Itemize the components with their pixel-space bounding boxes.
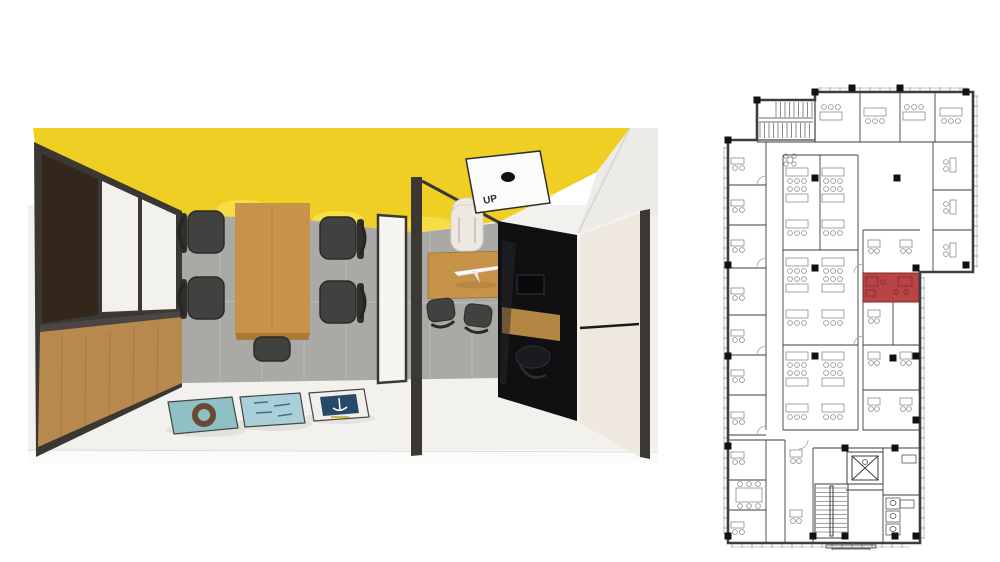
column-marker: [725, 262, 732, 269]
desk-cluster: [822, 220, 844, 228]
column-marker: [754, 97, 761, 104]
glass-pane: [378, 215, 406, 383]
stairs-top: [757, 100, 815, 140]
column-marker: [849, 85, 856, 92]
up-sign: UP: [466, 151, 550, 213]
column-marker: [963, 262, 970, 269]
desk-cluster: [786, 284, 808, 292]
desk-cluster: [864, 108, 886, 116]
interior-walls-layer: [728, 92, 973, 543]
column-marker: [913, 417, 920, 424]
core: [815, 452, 916, 550]
column-marker: [812, 265, 819, 272]
column-marker: [812, 89, 819, 96]
desk-cluster: [736, 488, 762, 502]
cream-panels: [580, 209, 650, 459]
plant-symbol: [784, 154, 796, 166]
desk-cluster: [868, 310, 880, 317]
floorplan-svg: [708, 84, 980, 550]
chair: [179, 277, 224, 319]
column-marker: [913, 265, 920, 272]
poster-3: [309, 389, 369, 421]
desk-cluster: [950, 243, 956, 257]
desk-cluster: [790, 510, 802, 517]
desk-cluster: [790, 450, 802, 457]
desk-cluster: [786, 258, 808, 266]
desk-cluster: [903, 112, 925, 120]
chair: [320, 281, 365, 323]
desk-cluster: [731, 452, 744, 458]
desk-cluster: [731, 200, 744, 206]
desk-cluster: [822, 404, 844, 412]
highlighted-room: [863, 273, 919, 302]
door-arcs: [757, 176, 863, 449]
desk-cluster: [731, 412, 744, 418]
desk-cluster: [822, 194, 844, 202]
window-ticks-layer: [723, 87, 978, 548]
chair: [179, 211, 224, 253]
column-marker: [897, 85, 904, 92]
chair: [320, 217, 365, 259]
desk-cluster: [731, 370, 744, 376]
column-marker: [892, 445, 899, 452]
chair: [254, 337, 290, 361]
stairs-bottom: [815, 484, 848, 538]
desk-cluster: [820, 112, 842, 120]
column-marker: [913, 533, 920, 540]
office-3d-render: UP: [28, 125, 658, 463]
column-marker: [894, 175, 901, 182]
building-outline: [728, 92, 973, 543]
column-marker: [890, 355, 897, 362]
desk-cluster: [868, 352, 880, 359]
poster-2: [240, 393, 305, 427]
desk-cluster: [822, 310, 844, 318]
up-sign-dot: [501, 172, 515, 182]
column-marker: [725, 533, 732, 540]
desk-cluster: [731, 522, 744, 528]
poster-1: [168, 397, 238, 434]
desk-cluster: [822, 258, 844, 266]
column-marker: [810, 533, 817, 540]
conference-table: [235, 203, 310, 340]
desk-cluster: [900, 240, 912, 247]
column-marker: [725, 353, 732, 360]
dark-glass-office: [498, 221, 577, 421]
desk-cluster: [786, 310, 808, 318]
column-marker: [725, 137, 732, 144]
column-marker: [812, 353, 819, 360]
desk-cluster: [786, 352, 808, 360]
desk-cluster: [950, 158, 956, 172]
entry-steps: [826, 545, 876, 550]
desk-cluster: [822, 378, 844, 386]
desk-cluster: [731, 158, 744, 164]
desk-cluster: [822, 284, 844, 292]
desk-cluster: [786, 194, 808, 202]
desk-cluster: [900, 398, 912, 405]
desk-cluster: [786, 404, 808, 412]
desk-cluster: [822, 352, 844, 360]
slide-canvas: { "render": { "description": "top-down 3…: [0, 0, 1000, 562]
column-marker: [963, 89, 970, 96]
desk-cluster: [868, 240, 880, 247]
column-marker: [725, 443, 732, 450]
column-marker: [892, 533, 899, 540]
floor-plan: [708, 84, 980, 550]
desk-cluster: [731, 240, 744, 246]
render-svg: UP: [28, 125, 658, 463]
desk-cluster: [786, 378, 808, 386]
desk-cluster: [868, 398, 880, 405]
desk-cluster: [900, 352, 912, 359]
elevator: [847, 452, 883, 484]
column-marker: [842, 533, 849, 540]
column-marker: [812, 175, 819, 182]
desk-cluster: [940, 108, 962, 116]
column-marker: [842, 445, 849, 452]
desk-cluster: [731, 330, 744, 336]
desk-cluster: [786, 168, 808, 176]
desk-cluster: [786, 220, 808, 228]
desk-cluster: [950, 200, 956, 214]
desk-cluster: [822, 168, 844, 176]
desk-cluster: [731, 288, 744, 294]
column-marker: [913, 353, 920, 360]
